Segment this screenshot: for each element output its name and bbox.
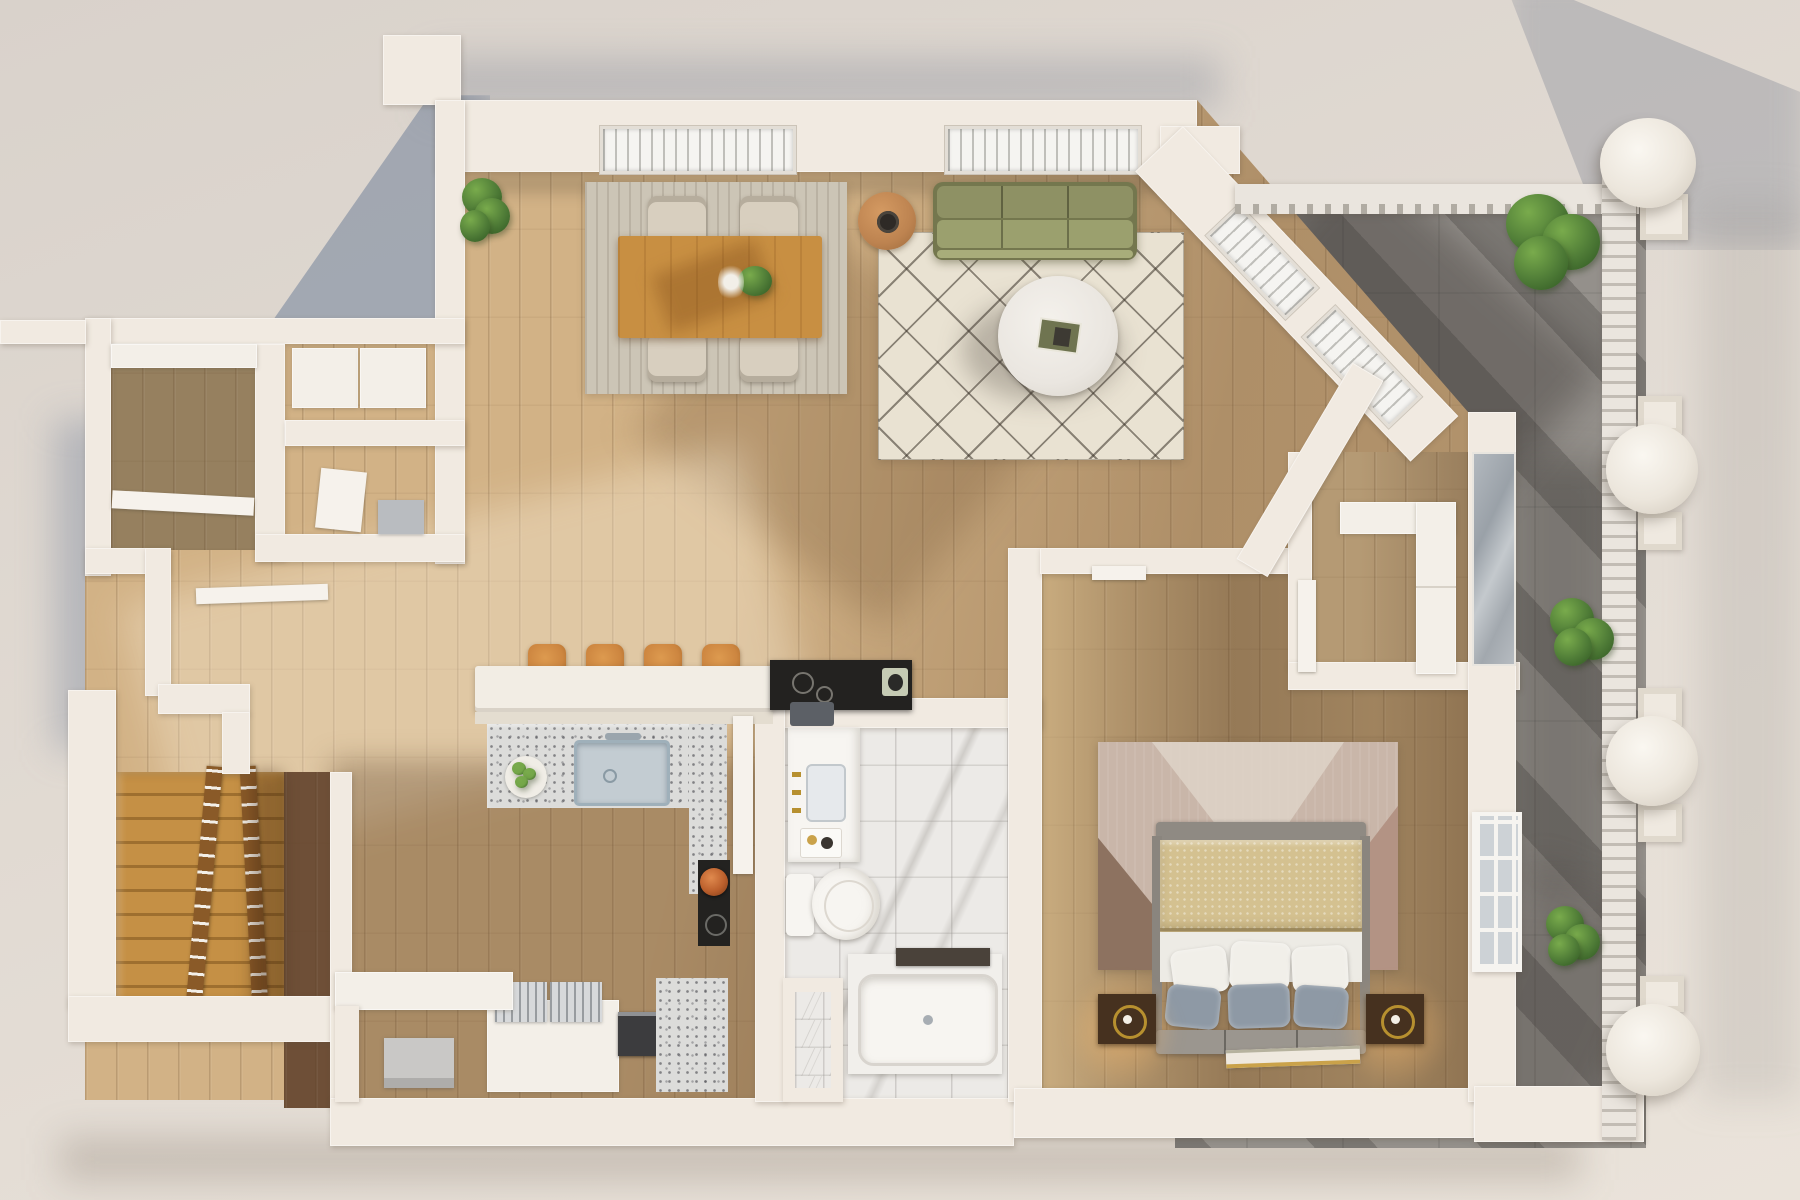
sofa [933,182,1137,260]
wall-stairs-bottom [68,996,342,1042]
sofa-back-cushions [937,186,1133,218]
potted-plant-dining [460,176,512,250]
coffee-machine [618,1012,658,1056]
dining-chair [648,334,706,382]
wall-bedroom-left [1008,548,1042,1102]
towel [790,702,834,726]
laundry-counter [335,972,513,1010]
nightstand [1366,994,1424,1044]
wall-closet-top [85,318,465,344]
duvet [1160,840,1362,934]
wall-closet-divider [285,420,465,446]
perfume-tray [800,828,842,858]
door-leaf-bedroom [1092,566,1146,580]
pony-wall [158,684,250,714]
bathtub-deck [848,954,1002,1074]
entry-closet-floor [111,344,257,550]
shower-stall [783,978,843,1102]
balcony-column [1600,118,1696,208]
toilet-seat-line [824,880,874,932]
dining-table [618,236,822,338]
wall-bath-left [755,698,785,1102]
wardrobe-door-line [1416,586,1456,588]
toilet-tank [786,874,814,936]
wardrobe-unit [1416,502,1456,674]
centerpiece-flowers [718,262,744,302]
balcony-column [1606,1004,1700,1096]
stair-shadow [252,772,282,1006]
wall-stairs-outer [68,690,116,1008]
tree-shadow-strip [1510,460,1610,890]
door-leaf-closet [315,468,367,532]
bath-shelf [896,948,990,966]
understairs-floor [284,772,334,1108]
closet-cabinet-2 [360,348,426,408]
island-counter-tier [475,712,773,724]
copper-pot [700,868,728,896]
bed-footboard [1156,822,1366,840]
closet-mirror [378,500,424,534]
column-base [1638,512,1682,550]
bathtub [858,974,998,1066]
dining-chair [740,334,798,382]
burner-ring [816,686,833,703]
wall-top-stub [383,35,461,105]
wall-closet-left [85,318,111,576]
balcony-column [1606,424,1698,514]
dish-rack [550,982,602,1022]
faucet [605,733,641,740]
balcony-column [1606,716,1698,806]
closet-cabinet-1 [292,348,358,408]
gold-faucet [792,808,801,813]
gold-faucet [792,790,801,795]
wall-stub-left [0,320,86,344]
side-table [858,192,916,250]
fruit-bowl [505,756,547,798]
island-bar-counter [475,666,773,712]
kitchen-sink [574,740,670,806]
potted-plant-balcony-top [1500,190,1606,296]
wall-bottom-center [330,1098,1014,1146]
window-living [945,126,1141,174]
door-leaf-nook [1298,580,1316,672]
wall-bottom-right [1014,1088,1474,1138]
decor-bowl [877,211,899,233]
bathroom-vanity [788,728,860,862]
nightstand [1098,994,1156,1044]
sofa-seat-cushions [937,220,1133,248]
sofa-front-lip [937,250,1133,258]
wall-closet-mid [255,344,285,560]
window-bedroom-right [1472,812,1522,972]
burner-ring [792,672,814,694]
glass-partition [1472,452,1516,666]
coffee-table [998,276,1118,396]
wall-entry-v [145,548,171,696]
lamp-bulb [1391,1015,1400,1024]
shower-floor [795,992,831,1088]
book-small [1053,327,1071,347]
potted-plant-balcony-mid [1546,596,1618,670]
burner-ring [705,914,727,936]
floor-plan-render [0,0,1800,1200]
entry-cabinet-top [111,344,257,368]
duvet-fold [1160,928,1362,931]
perfume-bottle [807,835,817,845]
laundry-nook-wall [335,1006,359,1102]
perfume-bottle [821,837,833,849]
cooktop-strip [698,860,730,946]
gold-faucet [792,772,801,777]
counter-corner [656,978,728,1092]
window-dining [600,126,796,174]
column-base [1638,804,1682,842]
potted-plant-balcony-low [1542,904,1604,972]
kettle-dark [888,674,903,691]
lamp-bulb [1123,1015,1132,1024]
drain [603,769,617,783]
storage-box [384,1038,454,1088]
shadow-right-margin [1700,200,1800,1100]
vanity-sink [806,764,846,822]
door-leaf-bathroom [733,716,753,874]
wall-closet-bottom [255,534,465,562]
toilet [786,868,882,940]
tub-drain [923,1015,933,1025]
pony-wall-return [222,712,250,774]
pillow-blue [1227,983,1290,1029]
